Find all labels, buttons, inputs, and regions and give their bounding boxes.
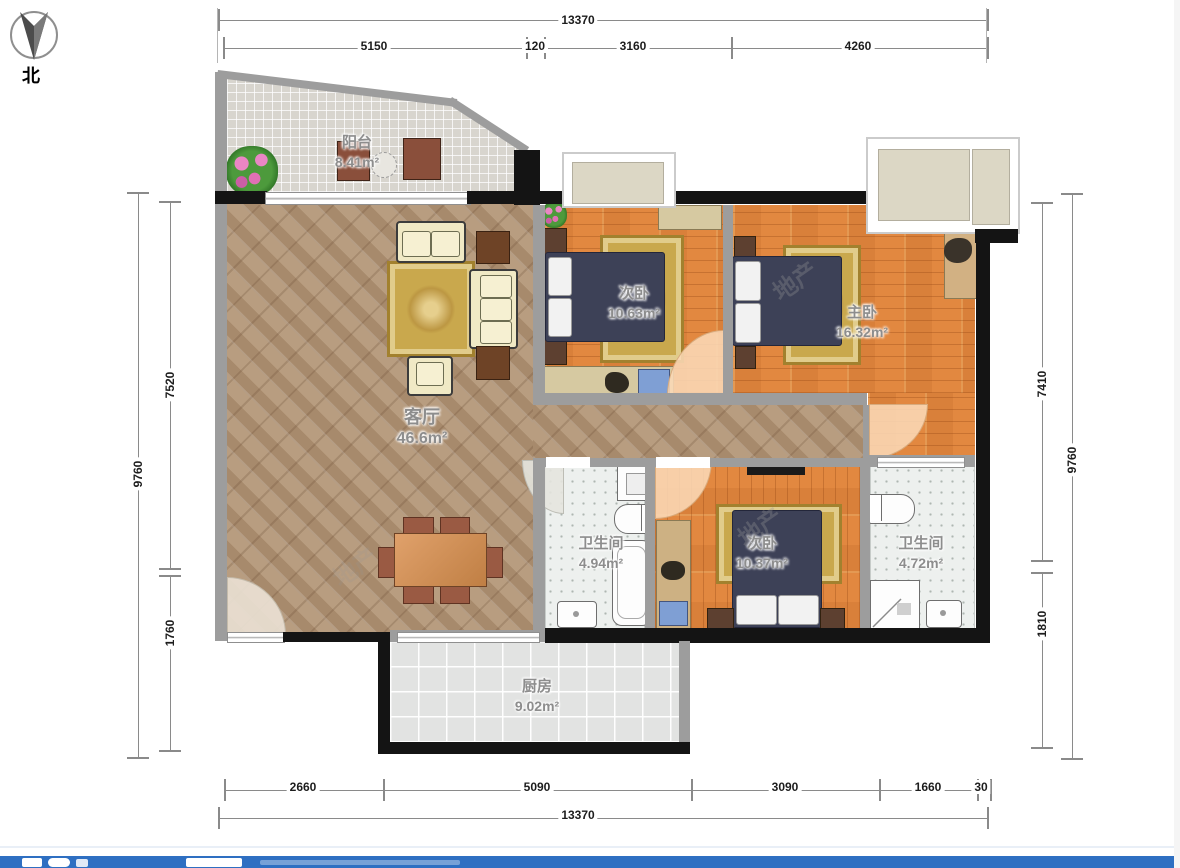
bay-window-inner — [972, 149, 1010, 225]
dim-top-outer-value: 13370 — [558, 13, 597, 27]
dim-bottom-5: 30 — [971, 780, 990, 794]
dim-bottom-1: 2660 — [287, 780, 320, 794]
bath-right-label: 卫生间 4.72m² — [898, 534, 943, 572]
wall — [860, 458, 870, 630]
dim-tick — [159, 575, 181, 577]
footer-text-blur — [260, 860, 460, 865]
armchair — [407, 356, 453, 396]
wall — [723, 205, 733, 393]
bath-right-window — [877, 457, 965, 468]
dim-tick — [218, 807, 220, 829]
footer-logo — [186, 858, 242, 867]
dim-top-2: 120 — [522, 39, 548, 53]
balcony-label: 阳台 8.41m² — [335, 133, 379, 171]
dim-tick — [987, 9, 989, 31]
right-edge-strip — [1174, 0, 1180, 868]
master-bed — [732, 256, 842, 346]
dim-tick — [127, 757, 149, 759]
hallway — [533, 405, 863, 458]
bedroom-top-cabinet — [658, 205, 722, 230]
dim-right-outer-value: 9760 — [1065, 444, 1079, 477]
kitchen-pass-window — [397, 632, 540, 643]
dining-chair — [403, 586, 434, 604]
dim-left-outer-value: 9760 — [131, 458, 145, 491]
dim-tick — [987, 37, 989, 59]
dim-extension — [217, 8, 218, 63]
bedroom-bottom-headboard — [747, 467, 805, 475]
wall — [545, 628, 990, 643]
dim-tick — [879, 779, 881, 801]
dim-tick — [159, 750, 181, 752]
dim-line-top-outer — [218, 20, 988, 21]
plant-icon — [226, 146, 278, 196]
entrance-threshold — [227, 632, 285, 643]
nightstand — [735, 346, 756, 369]
toilet-icon — [869, 494, 915, 524]
dim-tick — [691, 779, 693, 801]
wall — [215, 72, 227, 194]
dim-tick — [159, 201, 181, 203]
wall — [215, 191, 227, 641]
side-table-bottom — [476, 346, 510, 380]
wall — [378, 636, 390, 754]
dining-table — [394, 533, 487, 587]
door-opening — [546, 457, 590, 468]
living-label: 客厅 46.6m² — [397, 406, 448, 450]
dim-line-bottom-outer — [218, 818, 988, 819]
master-label: 主卧 16.32m² — [836, 303, 888, 341]
nightstand — [707, 608, 734, 629]
page-divider-line — [0, 846, 1180, 848]
bath-left-label: 卫生间 4.94m² — [578, 534, 623, 572]
footer-bar — [0, 856, 1180, 868]
dim-line-left-inner-2 — [170, 575, 171, 750]
bay-window-inner — [572, 162, 664, 204]
sink — [926, 600, 962, 628]
north-indicator: 北 — [6, 6, 66, 90]
wall — [533, 458, 545, 632]
dim-tick — [1031, 560, 1053, 562]
dim-tick — [1061, 758, 1083, 760]
dim-tick — [731, 37, 733, 59]
living-rug — [387, 261, 475, 357]
footer-logo — [76, 859, 88, 867]
dim-tick — [127, 192, 149, 194]
bedroom-bottom-wardrobe — [656, 520, 691, 629]
north-label: 北 — [22, 62, 40, 88]
dim-tick — [224, 779, 226, 801]
kitchen-label: 厨房 9.02m² — [515, 677, 559, 715]
bedroom-bottom-label: 次卧 10.37m² — [736, 534, 788, 572]
dim-tick — [987, 807, 989, 829]
wall — [283, 632, 390, 642]
wall — [679, 641, 690, 742]
dim-tick — [383, 779, 385, 801]
dim-bottom-3: 3090 — [769, 780, 802, 794]
dim-top-4: 4260 — [842, 39, 875, 53]
shower — [870, 580, 920, 630]
dim-right-2: 1810 — [1035, 608, 1049, 641]
wall — [645, 465, 655, 630]
balcony-chair — [403, 138, 441, 180]
dim-line-bottom-inner — [224, 790, 990, 791]
footer-logo — [22, 858, 42, 867]
dim-left-2: 1760 — [163, 617, 177, 650]
north-arrow-icon — [6, 6, 60, 62]
dim-top-3: 3160 — [617, 39, 650, 53]
dim-tick — [159, 568, 181, 570]
dim-extension — [986, 8, 987, 63]
dim-bottom-outer-value: 13370 — [558, 808, 597, 822]
wall — [976, 229, 990, 643]
side-table-top — [476, 231, 510, 264]
nightstand — [820, 608, 845, 629]
sofa-two-seat — [396, 221, 466, 263]
dim-line-right-inner-2 — [1042, 572, 1043, 747]
dim-left-1: 7520 — [163, 369, 177, 402]
sofa-three-seat — [469, 269, 518, 349]
wall — [533, 205, 545, 393]
footer-logo — [48, 858, 70, 867]
dim-bottom-4: 1660 — [912, 780, 945, 794]
desk-chair — [944, 238, 972, 263]
dim-top-1: 5150 — [358, 39, 391, 53]
wall — [467, 191, 565, 204]
dim-tick — [218, 9, 220, 31]
wall — [533, 393, 867, 405]
wall — [382, 742, 690, 754]
dim-tick — [1031, 747, 1053, 749]
sink — [557, 601, 597, 628]
dim-tick — [223, 37, 225, 59]
wall — [215, 191, 267, 204]
balcony-sliding-door — [265, 192, 471, 205]
dim-tick — [1031, 572, 1053, 574]
wall — [671, 191, 869, 204]
bay-window-inner — [878, 149, 970, 221]
dining-chair — [440, 586, 470, 604]
door-opening — [656, 457, 710, 468]
dim-right-1: 7410 — [1035, 368, 1049, 401]
dim-bottom-2: 5090 — [521, 780, 554, 794]
wall — [863, 405, 869, 458]
bedroom-top-label: 次卧 10.63m² — [608, 284, 660, 322]
dim-tick — [1031, 202, 1053, 204]
dim-tick — [1061, 193, 1083, 195]
